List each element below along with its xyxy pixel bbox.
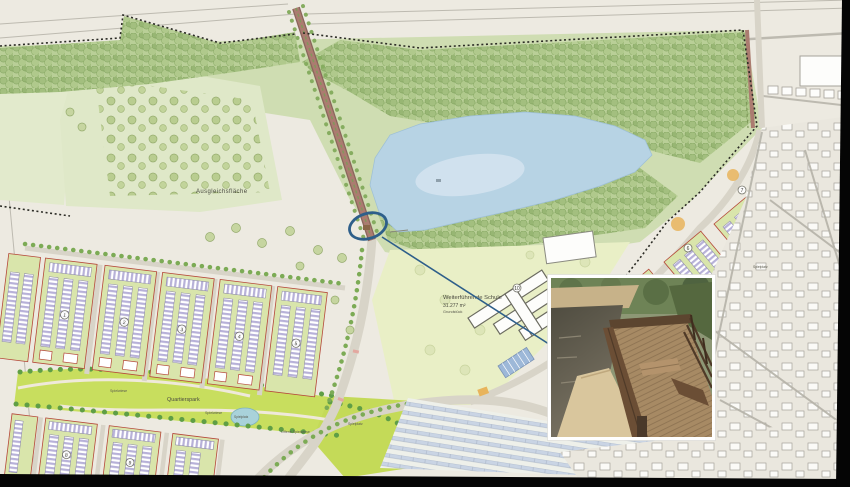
block-number: 7	[738, 186, 746, 194]
site-plan-map: 1 2 3 4 5	[0, 0, 850, 487]
inset-photo-viewing-deck	[548, 274, 716, 441]
label-play-meadow-2: Spielwiese	[205, 411, 222, 415]
block-number: 10	[513, 284, 521, 292]
block-number: 6	[684, 244, 692, 252]
label-play-meadow: Spielwiese	[110, 389, 127, 393]
label-school-area: 31.277 m²	[443, 303, 466, 309]
svg-text:10: 10	[514, 286, 520, 292]
svg-text:6: 6	[687, 246, 690, 252]
label-compensation-area: Ausgleichsfläche	[196, 189, 248, 195]
label-playground-south: Spielplatz	[348, 422, 363, 426]
playground-patch	[671, 217, 685, 231]
label-playground-east: Spielplatz	[753, 265, 768, 269]
svg-text:7: 7	[741, 188, 744, 194]
label-open-play-meadow: Offene Spielwiese	[281, 430, 310, 434]
label-playground-pond: Spielplatz	[234, 415, 249, 419]
slide-stage: 1 2 3 4 5	[0, 0, 850, 487]
playground-patch	[727, 169, 739, 181]
label-school-sub: Grundstück	[443, 310, 463, 314]
label-park: Quartierspark	[167, 397, 200, 403]
